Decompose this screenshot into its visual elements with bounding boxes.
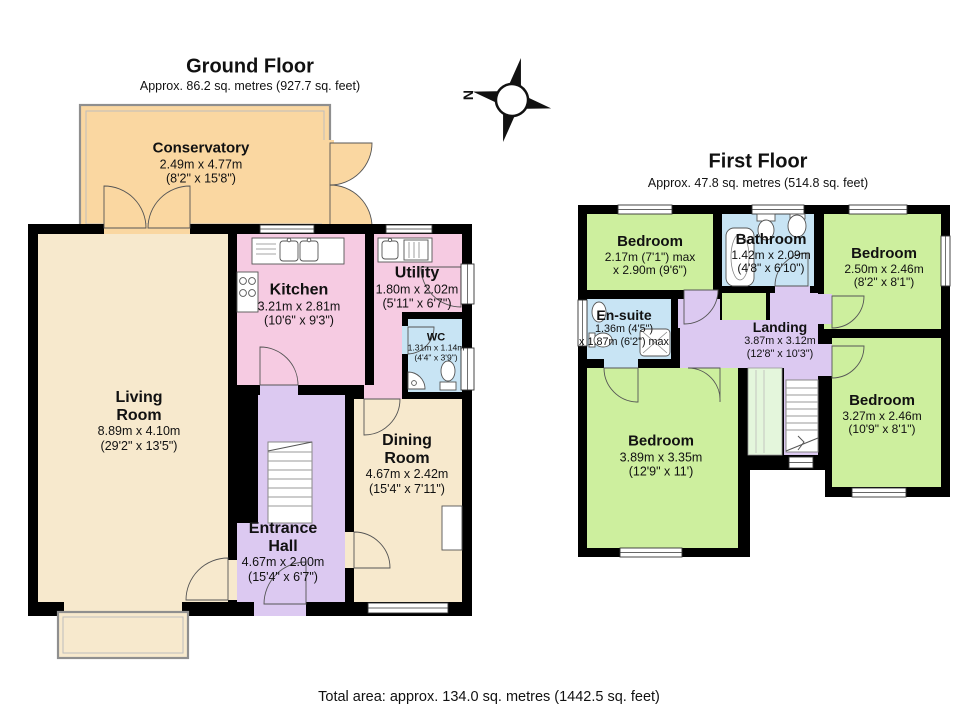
total-area-text: Total area: approx. 134.0 sq. metres (14… bbox=[318, 689, 660, 705]
dining-chimney bbox=[442, 506, 462, 550]
hall-dining-opening bbox=[345, 532, 354, 568]
room-label-dining-room: Dining Room 4.67m x 2.42m (15'4" x 7'11"… bbox=[366, 432, 449, 496]
room-label-utility: Utility 1.80m x 2.02m (5'11" x 6'7") bbox=[376, 265, 459, 312]
kitchen-sink-unit bbox=[252, 238, 344, 264]
room-label-bedroom4: Bedroom 3.27m x 2.46m (10'9" x 8'1") bbox=[842, 393, 921, 437]
room-label-wc: WC 1.31m x 1.14m (4'4" x 3'9") bbox=[408, 331, 465, 362]
room-label-conservatory: Conservatory 2.49m x 4.77m (8'2" x 15'8"… bbox=[153, 140, 250, 186]
first-floor-stairs bbox=[786, 380, 818, 452]
landing-cupboard-shape bbox=[722, 293, 766, 320]
bathroom-door-opening bbox=[775, 286, 810, 294]
bedroom2-door-opening bbox=[818, 294, 832, 324]
room-label-ensuite: En-suite 1.36m (4'5") x 1.87m (6'2") max bbox=[579, 308, 669, 348]
living-bay-window bbox=[58, 602, 188, 658]
dining-top-door-opening bbox=[364, 385, 398, 399]
first-floor-subtitle: Approx. 47.8 sq. metres (514.8 sq. feet) bbox=[648, 176, 868, 190]
bedroom3-door-opening bbox=[688, 359, 720, 368]
compass-north-label: N bbox=[460, 90, 476, 100]
floorplan-page: Ground Floor Approx. 86.2 sq. metres (92… bbox=[0, 0, 980, 712]
compass-rose bbox=[464, 50, 560, 151]
ground-floor-subtitle: Approx. 86.2 sq. metres (927.7 sq. feet) bbox=[140, 79, 360, 93]
conservatory-door-arc-bottom bbox=[330, 185, 372, 227]
kitchen-hob bbox=[237, 272, 258, 312]
wc-toilet bbox=[440, 361, 456, 390]
room-label-bedroom3: Bedroom 3.89m x 3.35m (12'9" x 11') bbox=[620, 433, 703, 479]
kitchen-door-opening bbox=[260, 385, 298, 397]
room-label-bedroom2: Bedroom 2.50m x 2.46m (8'2" x 8'1") bbox=[844, 246, 923, 290]
ensuite-door-opening bbox=[604, 359, 638, 368]
room-label-living-room: Living Room 8.89m x 4.10m (29'2" x 13'5"… bbox=[98, 389, 181, 453]
floorplan-drawing bbox=[0, 0, 980, 712]
first-floor-title: First Floor bbox=[709, 151, 808, 174]
room-label-landing: Landing 3.87m x 3.12m (12'8" x 10'3") bbox=[744, 320, 815, 360]
bedroom4-door-opening bbox=[818, 344, 832, 376]
room-label-entrance-hall: Entrance Hall 4.67m x 2.00m (15'4" x 6'7… bbox=[233, 520, 333, 584]
room-label-bathroom: Bathroom 1.42m x 2.09m (4'8" x 6'10") bbox=[731, 232, 810, 276]
utility-sink-unit bbox=[378, 238, 432, 262]
conservatory-door-arc-top bbox=[330, 143, 372, 185]
ground-stairs bbox=[268, 442, 312, 523]
room-label-kitchen: Kitchen 3.21m x 2.81m (10'6" x 9'3") bbox=[258, 282, 341, 329]
ground-floor-title: Ground Floor bbox=[186, 56, 314, 79]
room-label-bedroom1: Bedroom 2.17m (7'1") max x 2.90m (9'6") bbox=[605, 234, 696, 278]
airing-cupboard bbox=[748, 368, 782, 455]
